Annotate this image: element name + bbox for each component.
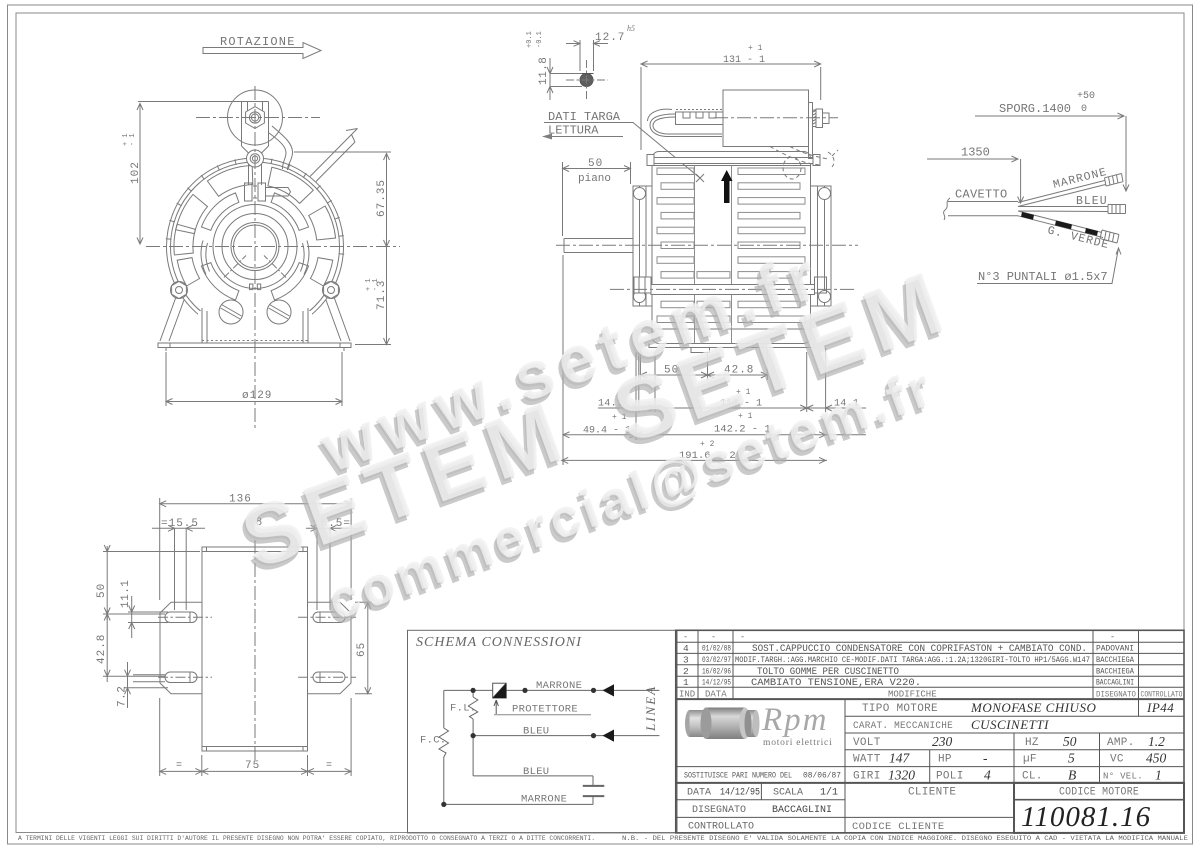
svg-text:3: 3 [683, 654, 689, 665]
svg-text:+50: +50 [1077, 91, 1095, 102]
svg-text:PROTETTORE: PROTETTORE [512, 704, 578, 716]
svg-text:50: 50 [96, 583, 108, 598]
svg-text:=: = [326, 761, 332, 772]
svg-text:BACCHIEGA: BACCHIEGA [1096, 667, 1134, 676]
svg-text:- 1: - 1 [372, 278, 380, 291]
svg-text:67.35: 67.35 [376, 179, 388, 217]
svg-text:4: 4 [984, 767, 991, 782]
svg-text:SCHEMA CONNESSIONI: SCHEMA CONNESSIONI [416, 635, 582, 650]
svg-text:HP: HP [938, 754, 952, 766]
svg-text:4: 4 [683, 643, 689, 654]
svg-text:IND: IND [679, 690, 695, 700]
svg-text:F.L.: F.L. [450, 703, 476, 715]
svg-text:CAVETTO: CAVETTO [955, 188, 1008, 202]
svg-text:=: = [176, 761, 182, 772]
svg-text:03/02/97: 03/02/97 [702, 656, 731, 665]
svg-text:IP44: IP44 [1146, 700, 1174, 715]
svg-text:-: - [711, 632, 716, 642]
svg-text:1350: 1350 [961, 146, 990, 160]
svg-text:-: - [740, 632, 745, 642]
svg-text:µF: µF [1023, 754, 1037, 766]
svg-text:DISEGNATO: DISEGNATO [692, 805, 746, 816]
svg-text:+ 1: + 1 [365, 278, 373, 291]
svg-text:5: 5 [1068, 751, 1075, 766]
svg-text:N.B. - DEL PRESENTE DISEGNO E': N.B. - DEL PRESENTE DISEGNO E' VALIDA SO… [622, 835, 1188, 842]
svg-text:ROTAZIONE: ROTAZIONE [220, 35, 296, 49]
svg-text:SPORG.1400: SPORG.1400 [999, 102, 1071, 116]
svg-text:B: B [1068, 767, 1076, 782]
svg-text:HZ: HZ [1025, 737, 1039, 749]
svg-text:MONOFASE CHIUSO: MONOFASE CHIUSO [970, 700, 1096, 715]
svg-text:50: 50 [1063, 734, 1077, 749]
svg-text:+ 1: + 1 [748, 44, 763, 53]
svg-text:PADOVANI: PADOVANI [1096, 645, 1134, 654]
svg-text:102: 102 [130, 161, 142, 184]
svg-text:VC: VC [1110, 754, 1124, 766]
svg-text:08/06/87: 08/06/87 [803, 771, 841, 781]
svg-text:11.8: 11.8 [538, 57, 550, 85]
svg-text:1: 1 [1155, 767, 1162, 782]
svg-text:SOSTITUISCE PARI NUMERO DEL: SOSTITUISCE PARI NUMERO DEL [684, 771, 792, 781]
svg-text:CAMBIATO TENSIONE,ERA V220.: CAMBIATO TENSIONE,ERA V220. [751, 678, 921, 689]
svg-text:131 - 1: 131 - 1 [723, 55, 765, 66]
svg-text:14/12/95: 14/12/95 [702, 678, 731, 687]
svg-text:12.7: 12.7 [595, 32, 625, 44]
svg-text:CARAT. MECCANICHE: CARAT. MECCANICHE [853, 721, 953, 732]
svg-text:TIPO MOTORE: TIPO MOTORE [862, 703, 938, 715]
svg-text:-: - [983, 751, 988, 766]
svg-text:DATI TARGA: DATI TARGA [548, 110, 621, 124]
svg-text:DATA: DATA [705, 690, 727, 700]
svg-text:BACCHIEGA: BACCHIEGA [1096, 656, 1134, 665]
svg-text:50: 50 [588, 158, 603, 170]
svg-text:2: 2 [683, 666, 689, 677]
svg-text:230: 230 [932, 734, 953, 749]
svg-text:75: 75 [245, 760, 260, 772]
svg-text:CL.: CL. [1022, 770, 1043, 782]
svg-text:=15.5: =15.5 [161, 518, 199, 530]
svg-text:LINEA: LINEA [643, 685, 658, 732]
svg-text:7.2: 7.2 [117, 686, 129, 707]
svg-text:VOLT: VOLT [853, 737, 881, 749]
svg-text:DISEGNATO: DISEGNATO [1096, 689, 1136, 699]
svg-text:MODIF.TARGH.:AGG.MARCHIO CE-MO: MODIF.TARGH.:AGG.MARCHIO CE-MODIF.DATI T… [735, 655, 1090, 665]
svg-text:TOLTO GOMME PER CUSCINETTO: TOLTO GOMME PER CUSCINETTO [757, 667, 899, 678]
svg-text:LETTURA: LETTURA [548, 124, 599, 138]
svg-text:1320: 1320 [888, 767, 915, 782]
svg-text:SCALA: SCALA [773, 788, 803, 799]
svg-text:CUSCINETTI: CUSCINETTI [971, 717, 1049, 732]
svg-text:motori elettrici: motori elettrici [763, 738, 833, 748]
svg-text:MARRONE: MARRONE [521, 794, 567, 806]
svg-text:MODIFICHE: MODIFICHE [888, 690, 937, 700]
svg-text:ø129: ø129 [242, 390, 272, 402]
svg-text:WATT: WATT [853, 754, 881, 766]
svg-text:BACCAGLINI: BACCAGLINI [772, 805, 832, 816]
svg-text:CLIENTE: CLIENTE [908, 787, 956, 799]
svg-text:42.8: 42.8 [96, 634, 108, 664]
svg-text:14/12/95: 14/12/95 [720, 787, 760, 799]
svg-text:-: - [683, 632, 688, 642]
svg-text:16/02/96: 16/02/96 [702, 667, 731, 676]
svg-text:MARRONE: MARRONE [536, 680, 582, 692]
svg-text:0: 0 [1081, 104, 1087, 115]
svg-text:BACCAGLINI: BACCAGLINI [1096, 678, 1134, 687]
svg-text:-0.1: -0.1 [536, 31, 544, 48]
svg-text:+ 1: + 1 [122, 133, 130, 146]
svg-text:BLEU: BLEU [523, 766, 549, 778]
svg-text:CODICE CLIENTE: CODICE CLIENTE [852, 821, 944, 833]
svg-text:1/1: 1/1 [820, 787, 838, 799]
svg-text:CODICE MOTORE: CODICE MOTORE [1059, 787, 1139, 799]
svg-text:-: - [1110, 632, 1115, 642]
svg-text:BLEU: BLEU [523, 726, 549, 738]
svg-text:G. VERDE: G. VERDE [1046, 224, 1110, 252]
svg-text:+0.1: +0.1 [526, 31, 534, 48]
svg-text:A TERMINI DELLE VIGENTI LEGGI: A TERMINI DELLE VIGENTI LEGGI SUI DIRITT… [18, 835, 595, 842]
svg-text:h5: h5 [627, 24, 635, 33]
svg-text:450: 450 [1146, 751, 1167, 766]
svg-text:1: 1 [683, 677, 689, 688]
svg-text:CONTROLLATO: CONTROLLATO [1141, 690, 1183, 699]
svg-text:DATA: DATA [687, 788, 711, 799]
svg-text:Rpm: Rpm [761, 702, 829, 738]
svg-text:F.C.: F.C. [420, 735, 446, 747]
svg-text:GIRI: GIRI [853, 770, 881, 782]
svg-text:- 1: - 1 [129, 133, 137, 146]
svg-text:65: 65 [356, 642, 368, 657]
svg-text:110081.16: 110081.16 [1021, 801, 1151, 833]
svg-text:SOST.CAPPUCCIO CONDENSATORE CO: SOST.CAPPUCCIO CONDENSATORE CON COPRIFAS… [752, 644, 1087, 655]
svg-text:CONTROLLATO: CONTROLLATO [688, 822, 754, 833]
svg-text:N°3 PUNTALI ø1.5x7: N°3 PUNTALI ø1.5x7 [978, 270, 1108, 284]
svg-text:BLEU: BLEU [1076, 195, 1108, 208]
svg-text:AMP.: AMP. [1107, 737, 1135, 749]
svg-text:11.1: 11.1 [120, 580, 132, 608]
svg-text:147: 147 [889, 751, 911, 766]
svg-text:01/02/08: 01/02/08 [702, 645, 731, 654]
svg-text:MARRONE: MARRONE [1052, 166, 1109, 192]
svg-text:1.2: 1.2 [1148, 734, 1165, 749]
svg-text:POLI: POLI [936, 770, 964, 782]
svg-text:piano: piano [578, 173, 611, 185]
svg-text:N° VEL.: N° VEL. [1103, 771, 1143, 781]
